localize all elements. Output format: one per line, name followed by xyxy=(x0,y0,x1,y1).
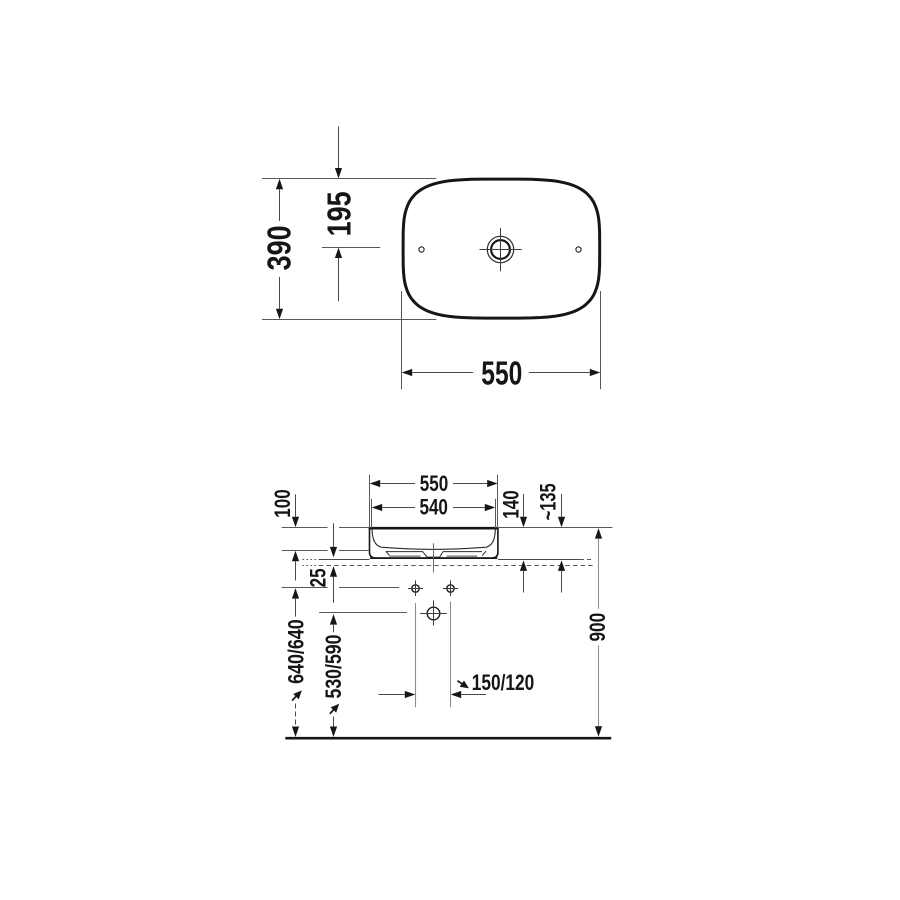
svg-text:195: 195 xyxy=(320,191,357,236)
svg-text:550: 550 xyxy=(420,471,449,496)
svg-text:390: 390 xyxy=(261,225,298,270)
svg-text:~135: ~135 xyxy=(536,483,561,520)
svg-text:900: 900 xyxy=(585,613,610,642)
svg-text:25: 25 xyxy=(305,568,330,587)
svg-text:100: 100 xyxy=(270,489,295,518)
svg-text:150/120: 150/120 xyxy=(472,670,535,695)
svg-text:140: 140 xyxy=(498,490,523,519)
svg-text:640/640: 640/640 xyxy=(284,619,309,684)
svg-text:550: 550 xyxy=(481,355,522,392)
svg-text:530/590: 530/590 xyxy=(321,635,346,699)
svg-text:540: 540 xyxy=(419,495,448,520)
